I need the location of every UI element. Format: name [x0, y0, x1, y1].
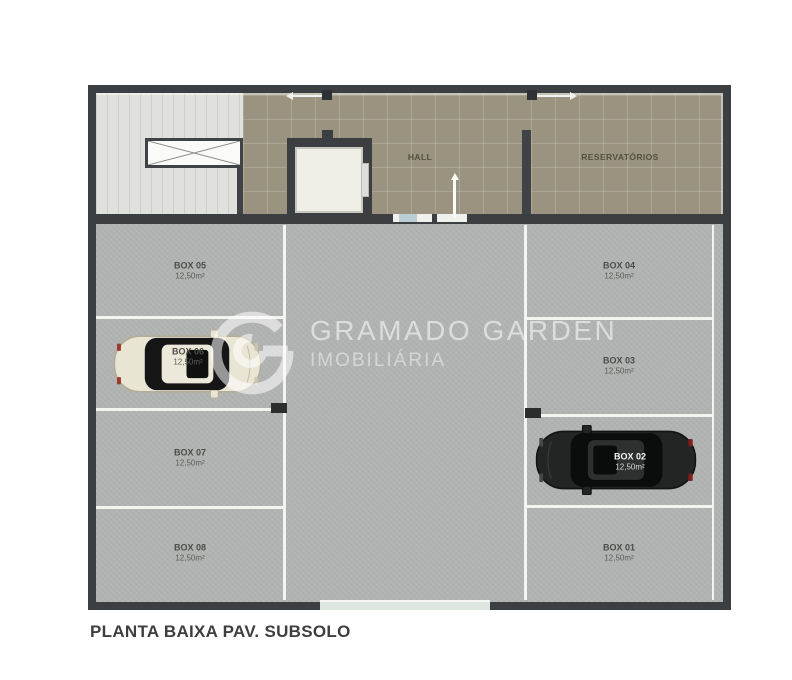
stall-box-04: BOX 04 12,50m²	[603, 260, 635, 281]
stall-box-01: BOX 01 12,50m²	[603, 542, 635, 563]
door-swing-line	[537, 95, 570, 97]
stair-flight	[145, 138, 243, 168]
plan-title: PLANTA BAIXA PAV. SUBSOLO	[90, 622, 351, 642]
stall-line	[524, 505, 714, 508]
hall-window	[399, 214, 417, 222]
door-arrow-icon	[451, 173, 459, 180]
stall-line	[96, 408, 286, 411]
stall-line	[524, 317, 714, 320]
door-arrow-icon	[286, 92, 293, 100]
hall-door-opening	[437, 214, 467, 222]
floor-plan-page: HALL RESERVATÓRIOS	[0, 0, 792, 680]
stall-line	[712, 225, 714, 600]
door-hinge-icon	[322, 90, 332, 100]
hall-door-leaf	[453, 180, 456, 218]
elevator-cab	[295, 147, 363, 213]
stall-box-08: BOX 08 12,50m²	[174, 542, 206, 563]
stall-box-07: BOX 07 12,50m²	[174, 447, 206, 468]
stall-box-02: BOX 02 12,50m²	[614, 451, 646, 472]
wheel-stop	[271, 403, 287, 413]
door-hinge-icon	[527, 90, 537, 100]
garage-entrance	[320, 600, 490, 610]
x-cross-icon	[148, 141, 240, 165]
reservoirs-label: RESERVATÓRIOS	[581, 152, 658, 162]
door-arrow-icon	[570, 92, 577, 100]
stall-line	[524, 414, 714, 417]
elevator-door	[361, 163, 369, 197]
stall-line	[96, 506, 286, 509]
wheel-stop	[525, 408, 541, 418]
elevator-notch	[322, 130, 333, 140]
stall-box-06: BOX 06 12,50m²	[172, 346, 204, 367]
stall-line	[96, 316, 286, 319]
door-swing-line	[292, 95, 322, 97]
floor-plan: HALL RESERVATÓRIOS	[88, 85, 731, 610]
partition-wall	[522, 130, 531, 218]
hall-label: HALL	[408, 152, 432, 162]
stall-box-03: BOX 03 12,50m²	[603, 355, 635, 376]
stall-box-05: BOX 05 12,50m²	[174, 260, 206, 281]
